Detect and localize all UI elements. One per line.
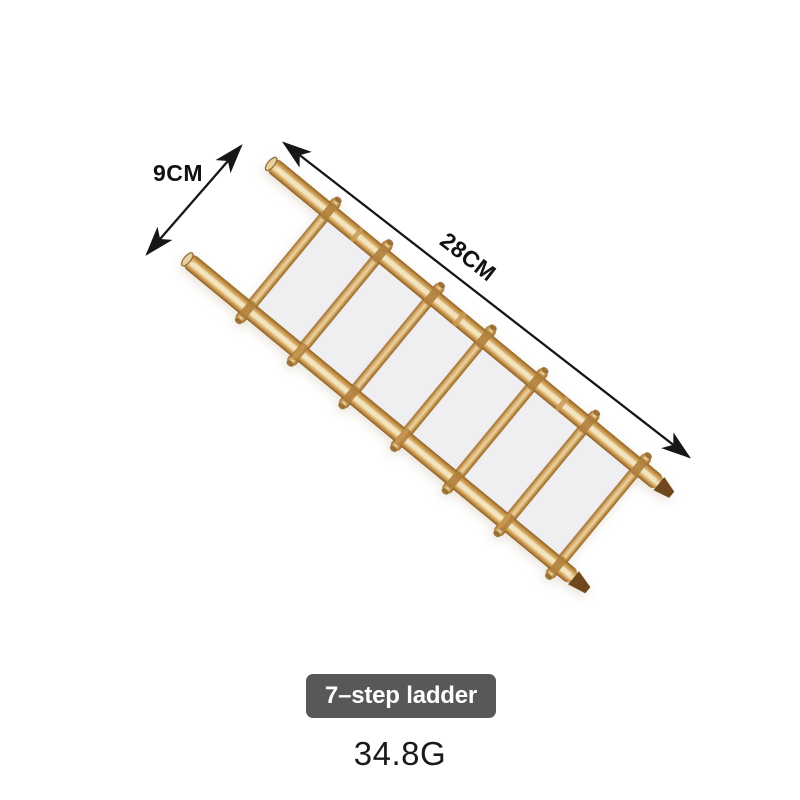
product-name-badge: 7–step ladder	[306, 674, 496, 718]
length-dimension-label: 28CM	[435, 227, 501, 286]
width-dimension-label: 9CM	[153, 160, 203, 186]
bamboo-ladder	[173, 146, 683, 606]
width-dimension: 9CM	[147, 146, 241, 254]
product-weight-text: 34.8G	[0, 735, 800, 773]
product-showcase: 9CM 28CM 7–step ladder 34.8G	[0, 0, 800, 800]
